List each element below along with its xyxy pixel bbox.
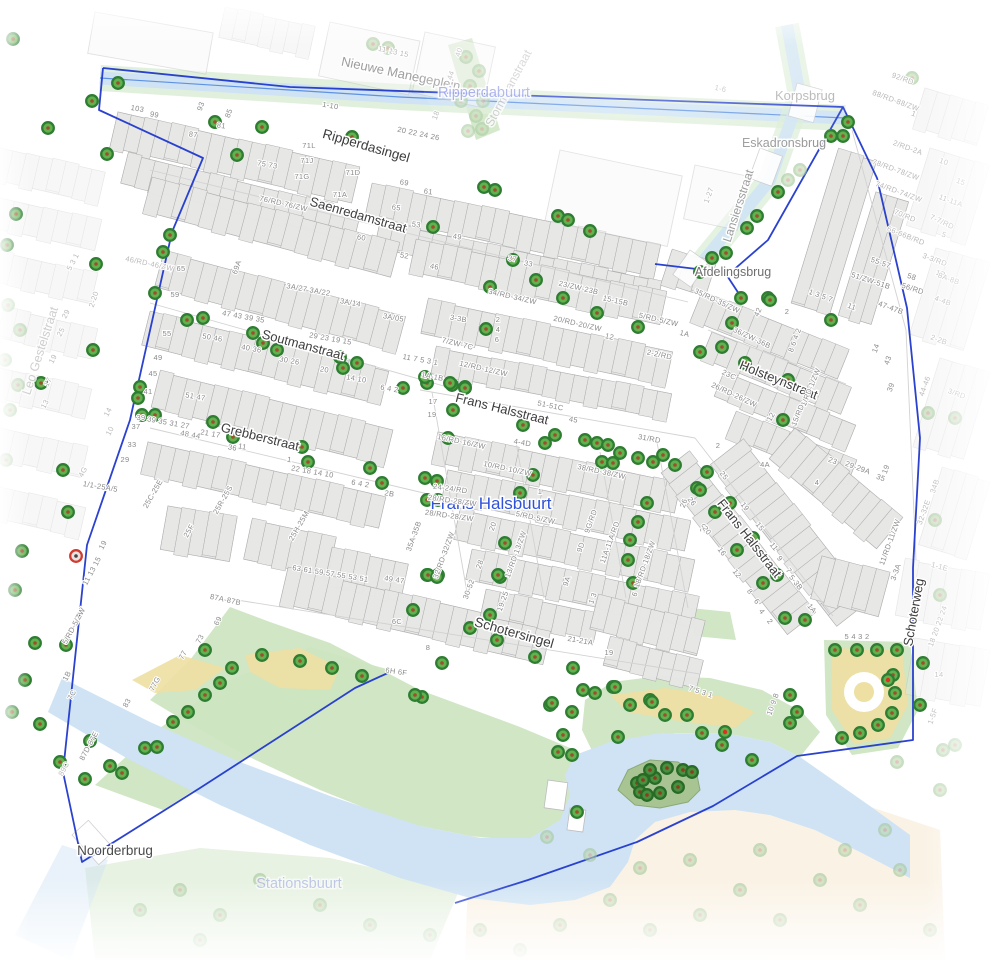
house-number-label: 31/RD — [637, 432, 661, 445]
house-number-label: 46 — [429, 261, 439, 271]
tree-trunk-dot — [155, 745, 159, 749]
tree-marker[interactable] — [681, 709, 693, 721]
tree-marker[interactable] — [181, 314, 193, 326]
tree-marker[interactable] — [669, 459, 681, 471]
tree-trunk-dot — [893, 691, 897, 695]
tree-marker[interactable] — [409, 689, 421, 701]
tree-trunk-dot — [710, 256, 714, 260]
house-number-label: 58 — [906, 271, 917, 282]
tree-marker[interactable] — [641, 497, 653, 509]
tree-trunk-dot — [411, 608, 415, 612]
tree-marker[interactable] — [836, 732, 848, 744]
tree-marker[interactable] — [657, 449, 669, 461]
tree-trunk-dot — [235, 153, 239, 157]
tree-trunk-dot — [720, 345, 724, 349]
tree-trunk-dot — [618, 451, 622, 455]
tree-marker[interactable] — [632, 321, 644, 333]
tree-marker[interactable] — [632, 452, 644, 464]
house-number-label: 36 — [227, 442, 237, 452]
tree-marker[interactable] — [696, 727, 708, 739]
tree-marker[interactable] — [701, 466, 713, 478]
fade-left — [0, 0, 30, 961]
house-number-label: 5 4 3 2 — [844, 632, 869, 641]
tree-marker[interactable] — [139, 742, 151, 754]
tree-marker[interactable] — [584, 849, 596, 861]
tree-marker[interactable] — [612, 731, 624, 743]
tree-trunk-dot — [645, 501, 649, 505]
tree-trunk-dot — [628, 538, 632, 542]
house-number-label: 49 — [154, 353, 163, 362]
tree-trunk-dot — [776, 190, 780, 194]
tree-marker[interactable] — [86, 95, 98, 107]
tree-trunk-dot — [705, 470, 709, 474]
house-number-label: 33 — [128, 440, 137, 449]
tree-marker[interactable] — [207, 416, 219, 428]
tree-marker[interactable] — [42, 122, 54, 134]
fade-right — [924, 0, 992, 961]
tree-trunk-dot — [840, 736, 844, 740]
tree-marker[interactable] — [591, 307, 603, 319]
tree-trunk-dot — [698, 350, 702, 354]
house-number-label: 55 — [163, 329, 172, 338]
tree-trunk-dot — [783, 616, 787, 620]
tree-trunk-dot — [636, 325, 640, 329]
tree-trunk-dot — [681, 768, 685, 772]
tree-trunk-dot — [431, 225, 435, 229]
tree-marker[interactable] — [57, 464, 69, 476]
house-number-label: 52 — [399, 250, 409, 260]
tree-trunk-dot — [829, 134, 833, 138]
tree-trunk-dot — [138, 385, 142, 389]
tree-marker[interactable] — [735, 292, 747, 304]
tree-trunk-dot — [786, 178, 790, 182]
tree-marker[interactable] — [731, 544, 743, 556]
tree-trunk-dot — [595, 311, 599, 315]
tree-marker[interactable] — [784, 717, 796, 729]
tree-marker[interactable] — [579, 434, 591, 446]
tree-trunk-dot — [638, 866, 642, 870]
tree-marker[interactable] — [529, 651, 541, 663]
tree-marker[interactable] — [541, 831, 553, 843]
tree-trunk-dot — [448, 381, 452, 385]
tree-trunk-dot — [570, 753, 574, 757]
tree-marker[interactable] — [364, 462, 376, 474]
tree-marker[interactable] — [199, 689, 211, 701]
tree-marker[interactable] — [871, 644, 883, 656]
tree-marker[interactable] — [889, 687, 901, 699]
tree-marker[interactable] — [499, 537, 511, 549]
tree-marker[interactable] — [199, 644, 211, 656]
tree-marker[interactable] — [247, 327, 259, 339]
tree-trunk-dot — [755, 214, 759, 218]
house-number-label: 45 — [568, 414, 578, 424]
tree-trunk-dot — [758, 848, 762, 852]
tree-marker[interactable] — [886, 707, 898, 719]
tree-marker[interactable] — [231, 149, 243, 161]
house-number-label: 1A — [679, 328, 691, 339]
tree-marker[interactable] — [772, 186, 784, 198]
tree-trunk-dot — [641, 778, 645, 782]
tree-trunk-dot — [298, 659, 302, 663]
house-number-label: 6C — [392, 617, 402, 626]
tree-trunk-dot — [798, 168, 802, 172]
tree-trunk-dot — [260, 125, 264, 129]
house-number-label: 4 — [496, 325, 500, 334]
map-canvas[interactable]: Nieuwe ManegepleinStormlaanstraatKorpsbr… — [0, 0, 992, 961]
tree-marker[interactable] — [447, 404, 459, 416]
tree-trunk-dot — [503, 541, 507, 545]
tree-trunk-dot — [918, 703, 922, 707]
tree-marker[interactable] — [872, 719, 884, 731]
tree-marker[interactable] — [79, 773, 91, 785]
tree-marker[interactable] — [62, 506, 74, 518]
tree-marker[interactable] — [694, 484, 706, 496]
house-number-label: 6 — [495, 335, 499, 344]
tree-marker[interactable] — [624, 534, 636, 546]
tree-marker[interactable] — [197, 312, 209, 324]
house-number-label: 99 — [149, 109, 159, 119]
tree-marker[interactable] — [851, 644, 863, 656]
tree-trunk-dot — [663, 713, 667, 717]
house-number-label: 81 — [216, 120, 226, 130]
tree-marker[interactable] — [427, 221, 439, 233]
tree-marker[interactable] — [584, 225, 596, 237]
tree-trunk-dot — [650, 700, 654, 704]
tree-marker[interactable] — [90, 258, 102, 270]
tree-marker[interactable] — [882, 674, 894, 686]
tree-trunk-dot — [566, 218, 570, 222]
tree-marker[interactable] — [591, 437, 603, 449]
tree-marker[interactable] — [751, 210, 763, 222]
tree-marker[interactable] — [562, 214, 574, 226]
house-number-label: 1-10 — [322, 100, 340, 112]
tree-trunk-dot — [90, 99, 94, 103]
tree-trunk-dot — [890, 711, 894, 715]
tree-trunk-dot — [685, 713, 689, 717]
house-number-label: 35A-35B — [404, 520, 423, 552]
street-label: Afdelingsbrug — [695, 265, 771, 279]
tree-marker[interactable] — [351, 357, 363, 369]
tree-marker[interactable] — [557, 292, 569, 304]
tree-marker[interactable] — [566, 749, 578, 761]
tree-marker[interactable] — [571, 806, 583, 818]
tree-marker[interactable] — [157, 246, 169, 258]
tree-marker[interactable] — [661, 762, 673, 774]
tree-trunk-dot — [739, 296, 743, 300]
tree-trunk-dot — [531, 473, 535, 477]
tree-trunk-dot — [588, 853, 592, 857]
tree-marker[interactable] — [602, 439, 614, 451]
tree-marker[interactable] — [567, 662, 579, 674]
tree-marker[interactable] — [214, 677, 226, 689]
tree-marker[interactable] — [659, 709, 671, 721]
tree-marker[interactable] — [116, 767, 128, 779]
house-number-label: 2 — [785, 307, 789, 316]
tree-trunk-dot — [690, 770, 694, 774]
tree-trunk-dot — [575, 810, 579, 814]
tree-marker[interactable] — [684, 854, 696, 866]
tree-trunk-dot — [698, 488, 702, 492]
tree-trunk-dot — [561, 296, 565, 300]
tree-trunk-dot — [723, 730, 727, 734]
tree-marker[interactable] — [609, 681, 621, 693]
tree-trunk-dot — [83, 777, 87, 781]
tree-trunk-dot — [550, 701, 554, 705]
tree-marker[interactable] — [842, 116, 854, 128]
tree-marker[interactable] — [87, 344, 99, 356]
map-viewport[interactable]: Nieuwe ManegepleinStormlaanstraatKorpsbr… — [0, 0, 992, 961]
house-number-label: 20 — [319, 364, 329, 374]
tree-trunk-dot — [493, 188, 497, 192]
tree-marker[interactable] — [741, 222, 753, 234]
tree-marker[interactable] — [794, 164, 806, 176]
tree-marker[interactable] — [716, 341, 728, 353]
tree-trunk-dot — [423, 476, 427, 480]
tree-marker[interactable] — [101, 148, 113, 160]
tree-marker[interactable] — [104, 760, 116, 772]
tree-trunk-dot — [843, 848, 847, 852]
house-number-label: 11 7 5 3 1 — [402, 352, 439, 367]
tree-trunk-dot — [168, 233, 172, 237]
tree-marker[interactable] — [672, 781, 684, 793]
tree-marker[interactable] — [151, 741, 163, 753]
tree-marker[interactable] — [764, 294, 776, 306]
house-number-label: 37 — [132, 422, 141, 431]
tree-trunk-dot — [120, 771, 124, 775]
tree-trunk-dot — [251, 331, 255, 335]
tree-marker[interactable] — [686, 766, 698, 778]
tree-marker[interactable] — [779, 612, 791, 624]
tree-trunk-dot — [665, 766, 669, 770]
tree-marker[interactable] — [654, 787, 666, 799]
tree-trunk-dot — [673, 463, 677, 467]
tree-trunk-dot — [788, 721, 792, 725]
tree-marker[interactable] — [182, 706, 194, 718]
tree-marker[interactable] — [757, 577, 769, 589]
tree-trunk-dot — [676, 785, 680, 789]
tree-trunk-dot — [895, 648, 899, 652]
street-label: Frans Halsstraat — [454, 390, 551, 428]
tree-marker[interactable] — [634, 862, 646, 874]
tree-marker[interactable] — [530, 274, 542, 286]
tree-marker[interactable] — [754, 844, 766, 856]
tree-marker[interactable] — [70, 550, 82, 562]
house-number-label: 71D — [346, 168, 361, 177]
tree-marker[interactable] — [566, 706, 578, 718]
tree-trunk-dot — [468, 626, 472, 630]
house-number-label: 6 4 2 — [351, 478, 370, 490]
fade-top-middle — [420, 0, 860, 190]
tree-marker[interactable] — [746, 754, 758, 766]
tree-trunk-dot — [330, 666, 334, 670]
tree-marker[interactable] — [706, 252, 718, 264]
house-number-label: 19 — [97, 539, 109, 551]
tree-marker[interactable] — [624, 699, 636, 711]
house-number-label: 1 — [538, 487, 542, 496]
tree-trunk-dot — [720, 743, 724, 747]
tree-marker[interactable] — [825, 314, 837, 326]
tree-marker[interactable] — [539, 437, 551, 449]
house-number-label: 2 — [765, 617, 775, 626]
tree-marker[interactable] — [489, 184, 501, 196]
house-number-label: 39 — [885, 381, 897, 392]
tree-trunk-dot — [781, 418, 785, 422]
tree-marker[interactable] — [641, 789, 653, 801]
tree-trunk-dot — [355, 361, 359, 365]
tree-trunk-dot — [829, 318, 833, 322]
house-number-label: 5/RD-5/ZW — [60, 605, 87, 645]
tree-trunk-dot — [211, 420, 215, 424]
tree-marker[interactable] — [549, 429, 561, 441]
tree-trunk-dot — [700, 731, 704, 735]
tree-marker[interactable] — [226, 662, 238, 674]
tree-marker[interactable] — [782, 174, 794, 186]
tree-marker[interactable] — [436, 657, 448, 669]
tree-trunk-dot — [561, 733, 565, 737]
house-number-label: 6 — [752, 597, 762, 606]
tree-trunk-dot — [628, 703, 632, 707]
tree-marker[interactable] — [622, 554, 634, 566]
park-building — [544, 780, 568, 811]
house-number-label: 21 17 — [200, 427, 222, 439]
tree-trunk-dot — [846, 120, 850, 124]
tree-trunk-dot — [581, 688, 585, 692]
tree-marker[interactable] — [397, 382, 409, 394]
tree-trunk-dot — [300, 445, 304, 449]
tree-trunk-dot — [745, 226, 749, 230]
tree-marker[interactable] — [791, 706, 803, 718]
tree-marker[interactable] — [577, 684, 589, 696]
house-number-label: 83 — [121, 697, 133, 709]
tree-trunk-dot — [593, 691, 597, 695]
tree-trunk-dot — [521, 423, 525, 427]
house-number-label: 17 — [429, 397, 438, 406]
tree-marker[interactable] — [492, 569, 504, 581]
tree-trunk-dot — [858, 731, 862, 735]
tree-marker[interactable] — [589, 687, 601, 699]
tree-marker[interactable] — [784, 689, 796, 701]
tree-marker[interactable] — [149, 287, 161, 299]
house-number-label: 19 — [605, 648, 614, 657]
tree-marker[interactable] — [326, 662, 338, 674]
tree-trunk-dot — [201, 316, 205, 320]
tree-marker[interactable] — [614, 447, 626, 459]
house-number-label: 59 — [171, 290, 180, 299]
tree-trunk-dot — [886, 678, 890, 682]
house-number-label: 39 — [137, 413, 146, 422]
tree-marker[interactable] — [719, 726, 731, 738]
house-number-label: 60 — [356, 232, 366, 242]
tree-trunk-dot — [556, 750, 560, 754]
tree-marker[interactable] — [632, 516, 644, 528]
tree-trunk-dot — [653, 776, 657, 780]
house-number-label: 41 — [144, 387, 153, 396]
building-block — [160, 504, 237, 564]
tree-trunk-dot — [463, 386, 467, 390]
tree-marker[interactable] — [419, 472, 431, 484]
tree-trunk-dot — [651, 460, 655, 464]
house-number-label: 71J — [301, 156, 314, 165]
tree-trunk-dot — [595, 441, 599, 445]
tree-trunk-dot — [46, 126, 50, 130]
tree-marker[interactable] — [879, 824, 891, 836]
tree-marker[interactable] — [256, 121, 268, 133]
house-number-label: 87 — [188, 129, 198, 139]
tree-trunk-dot — [275, 348, 279, 352]
house-number-label: 19 — [428, 410, 437, 419]
house-number-label: 1/1-25A/5 — [82, 479, 118, 494]
fade-bottom — [0, 880, 992, 961]
tree-marker[interactable] — [644, 764, 656, 776]
tree-marker[interactable] — [557, 729, 569, 741]
tree-marker[interactable] — [112, 77, 124, 89]
tree-trunk-dot — [533, 655, 537, 659]
tree-trunk-dot — [496, 573, 500, 577]
tree-marker[interactable] — [29, 637, 41, 649]
house-number-label: 37 — [507, 253, 517, 263]
tree-marker[interactable] — [894, 864, 906, 876]
tree-marker[interactable] — [829, 644, 841, 656]
tree-trunk-dot — [730, 321, 734, 325]
tree-marker[interactable] — [694, 346, 706, 358]
tree-marker[interactable] — [839, 844, 851, 856]
house-number-label: 2 — [716, 441, 720, 450]
tree-marker[interactable] — [546, 697, 558, 709]
tree-marker[interactable] — [164, 229, 176, 241]
house-number-label: 87A-87B — [209, 592, 241, 607]
tree-marker[interactable] — [167, 716, 179, 728]
tree-marker[interactable] — [777, 414, 789, 426]
house-number-label: 2 — [496, 315, 500, 324]
house-number-label: 85 — [223, 107, 235, 118]
tree-marker[interactable] — [480, 323, 492, 335]
tree-marker[interactable] — [891, 644, 903, 656]
house-number-label: 19 — [880, 463, 892, 474]
tree-marker[interactable] — [837, 130, 849, 142]
tree-marker[interactable] — [799, 614, 811, 626]
tree-marker[interactable] — [256, 649, 268, 661]
house-number-label: 11 — [238, 441, 248, 451]
house-number-label: 10 — [104, 425, 116, 437]
tree-marker[interactable] — [407, 604, 419, 616]
tree-marker[interactable] — [294, 655, 306, 667]
tree-trunk-dot — [105, 152, 109, 156]
tree-trunk-dot — [341, 366, 345, 370]
tree-marker[interactable] — [891, 756, 903, 768]
house-number-label: 2B — [384, 488, 395, 499]
tree-trunk-dot — [306, 460, 310, 464]
tree-trunk-dot — [606, 443, 610, 447]
tree-marker[interactable] — [854, 727, 866, 739]
tree-marker[interactable] — [716, 739, 728, 751]
tree-marker[interactable] — [478, 181, 490, 193]
tree-trunk-dot — [482, 185, 486, 189]
tree-marker[interactable] — [646, 696, 658, 708]
house-number-label: 29 — [121, 455, 130, 464]
tree-marker[interactable] — [376, 477, 388, 489]
tree-trunk-dot — [543, 441, 547, 445]
tree-marker[interactable] — [356, 670, 368, 682]
tree-marker[interactable] — [34, 718, 46, 730]
tree-marker[interactable] — [444, 377, 456, 389]
house-number-label: 14 — [870, 342, 882, 353]
tree-marker[interactable] — [132, 392, 144, 404]
tree-trunk-dot — [91, 348, 95, 352]
tree-marker[interactable] — [552, 746, 564, 758]
tree-trunk-dot — [570, 710, 574, 714]
tree-trunk-dot — [161, 250, 165, 254]
tree-marker[interactable] — [720, 247, 732, 259]
